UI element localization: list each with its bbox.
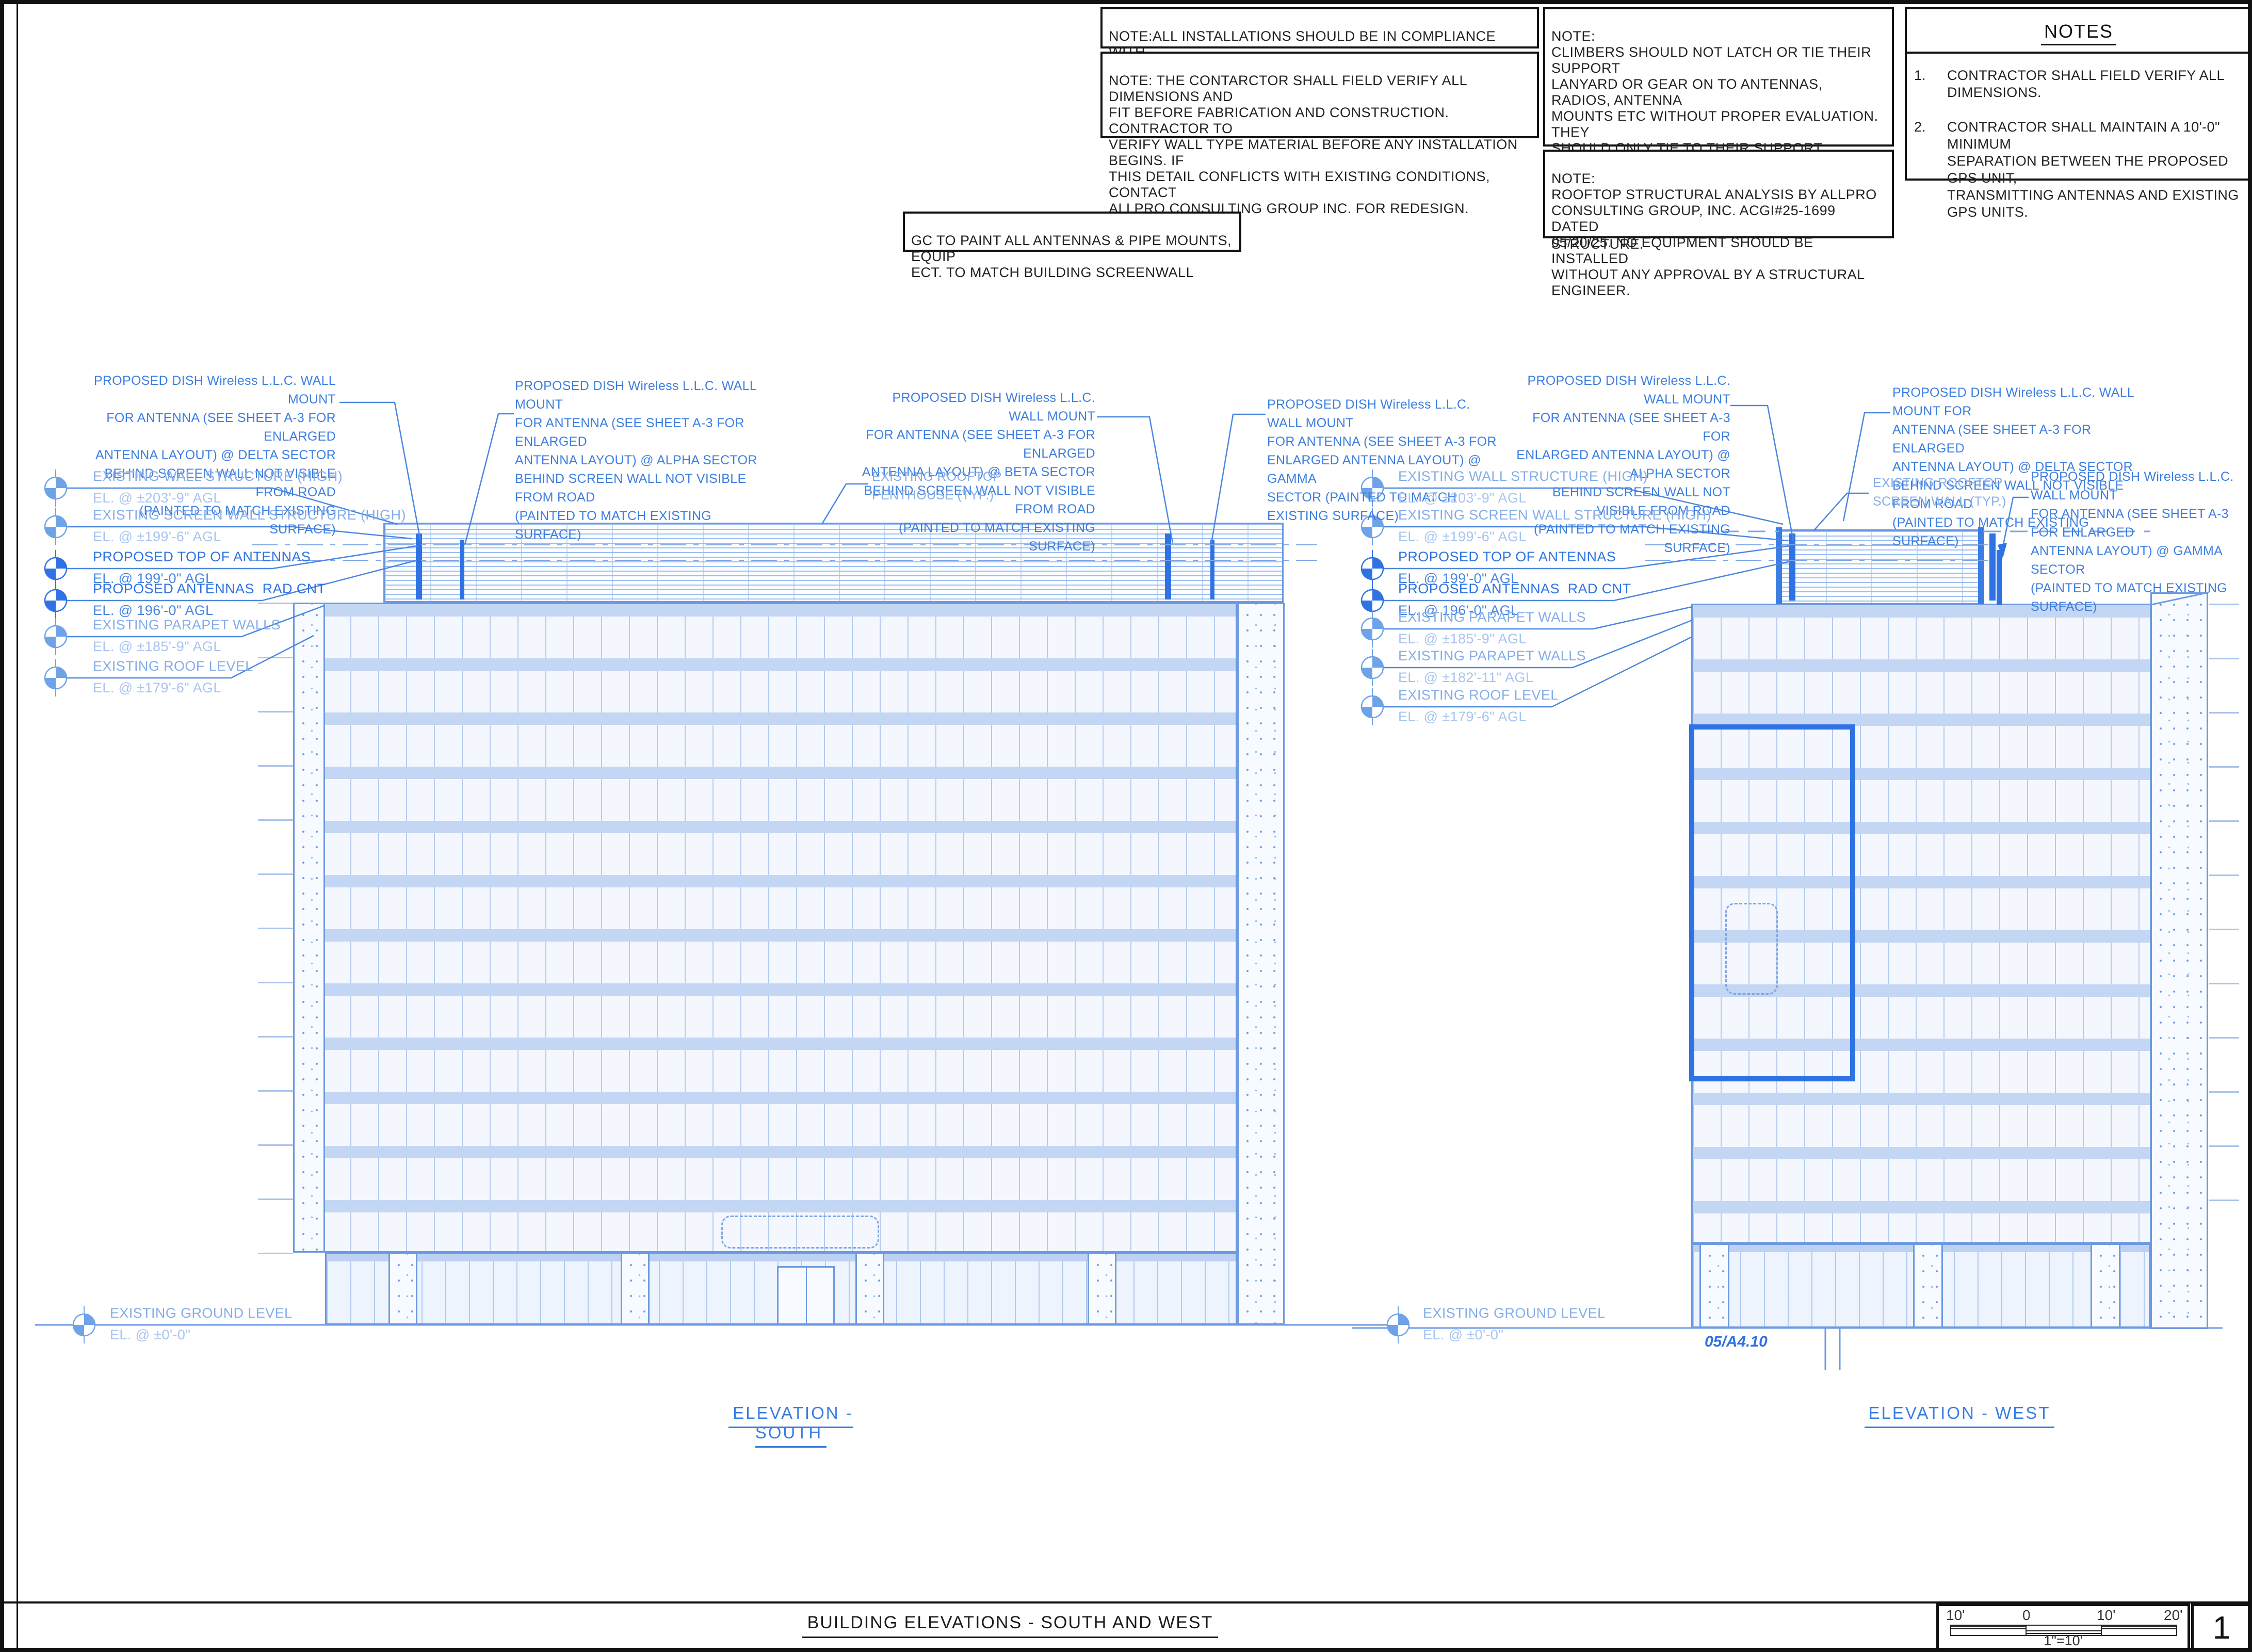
south-entrance-door [777, 1266, 835, 1325]
below-grade-lines [1825, 1328, 1840, 1370]
note-field-verify-text: NOTE: THE CONTARCTOR SHALL FIELD VERIFY … [1109, 73, 1518, 216]
scale-bar: 10' 0 10' 20' 1"=10' [1936, 1604, 2190, 1652]
west-screenwall-left-post [1776, 527, 1782, 606]
scale-ratio: 1"=10' [1939, 1633, 2188, 1649]
note-climbers-box: NOTE: CLIMBERS SHOULD NOT LATCH OR TIE T… [1543, 7, 1894, 147]
note-paint-box: GC TO PAINT ALL ANTENNAS & PIPE MOUNTS, … [903, 212, 1241, 252]
note-compliance-box: NOTE:ALL INSTALLATIONS SHOULD BE IN COMP… [1100, 7, 1539, 48]
south-facade-window-grid [293, 603, 1237, 1253]
south-datum-wall-structure: EXISTING WALL STRUCTURE (HIGH)EL. @ ±203… [93, 467, 343, 507]
notes-panel-item-2: 2. CONTRACTOR SHALL MAINTAIN A 10'-0" MI… [1914, 119, 2241, 221]
south-ground-pier [855, 1253, 884, 1325]
scale-label-left: 10' [1946, 1607, 1965, 1624]
notes-panel: NOTES 1. CONTRACTOR SHALL FIELD VERIFY A… [1905, 7, 2252, 181]
note-structural-box: NOTE: ROOFTOP STRUCTURAL ANALYSIS BY ALL… [1543, 150, 1894, 238]
west-right-concrete-column [2150, 592, 2208, 1329]
west-datum-parapet-walls-upper: EXISTING PARAPET WALLSEL. @ ±185'-9" AGL [1398, 608, 1586, 647]
note-field-verify-box: NOTE: THE CONTARCTOR SHALL FIELD VERIFY … [1100, 52, 1539, 138]
notes-panel-title: NOTES [1907, 9, 2250, 54]
drawing-sheet: NOTE:ALL INSTALLATIONS SHOULD BE IN COMP… [0, 0, 2252, 1652]
west-dashed-equipment-outline [1725, 903, 1778, 995]
south-ground-pier [388, 1253, 417, 1325]
note-structural-text: NOTE: ROOFTOP STRUCTURAL ANALYSIS BY ALL… [1551, 171, 1877, 298]
west-proposed-mount-highlight [1689, 724, 1855, 1081]
west-elevation-title: ELEVATION - WEST [1861, 1403, 2057, 1423]
west-floor-level-ticks [2209, 604, 2239, 1243]
south-datum-parapet-walls: EXISTING PARAPET WALLSEL. @ ±185'-9" AGL [93, 616, 281, 655]
west-ground-pier [1699, 1243, 1729, 1328]
south-ground-pier [621, 1253, 650, 1325]
titleblock-separator [4, 1601, 2248, 1604]
west-ground-pier [2091, 1243, 2120, 1328]
scale-label-mid: 10' [2097, 1607, 2116, 1624]
west-ground-pier [1913, 1243, 1943, 1328]
page-number: 1 [2191, 1604, 2252, 1652]
south-datum-screen-wall: EXISTING SCREEN WALL STRUCTURE (HIGH)EL.… [93, 506, 406, 545]
west-datum-roof-level: EXISTING ROOF LEVELEL. @ ±179'-6" AGL [1398, 686, 1559, 725]
south-elevation-title: ELEVATION - SOUTH [690, 1403, 892, 1443]
south-canopy-dashed-outline [721, 1216, 879, 1249]
west-datum-wall-structure: EXISTING WALL STRUCTURE (HIGH)EL. @ ±203… [1398, 467, 1648, 507]
sheet-left-margin-line [17, 4, 18, 1648]
scale-label-zero: 0 [2022, 1607, 2031, 1624]
note-paint-text: GC TO PAINT ALL ANTENNAS & PIPE MOUNTS, … [911, 233, 1232, 280]
south-datum-rad-center: PROPOSED ANTENNAS RAD CNTEL. @ 196'-0" A… [93, 580, 326, 619]
west-screenwall-label: EXISTING ROOFTOP SCREEN WALL (TYP.) [1873, 474, 2012, 511]
south-datum-ground-level: EXISTING GROUND LEVELEL. @ ±0'-0" [110, 1304, 292, 1343]
sheet-title: BUILDING ELEVATIONS - SOUTH AND WEST [768, 1613, 1253, 1633]
west-callout-gamma-sector: PROPOSED DISH Wireless L.L.C. WALL MOUNT… [2031, 467, 2252, 616]
south-datum-roof-level: EXISTING ROOF LEVELEL. @ ±179'-6" AGL [93, 657, 253, 697]
west-datum-parapet-walls-lower: EXISTING PARAPET WALLSEL. @ ±182'-11" AG… [1398, 647, 1586, 686]
south-callout-alpha-sector: PROPOSED DISH Wireless L.L.C. WALL MOUNT… [515, 377, 757, 544]
south-rooftop-penthouse-label: EXISTING ROOFTOP PENTHOUSE (TYP.) [872, 467, 1027, 505]
south-floor-level-ticks [258, 603, 293, 1254]
south-ground-pier [1088, 1253, 1116, 1325]
west-datum-screen-wall: EXISTING SCREEN WALL STRUCTURE (HIGH)EL.… [1398, 506, 1711, 545]
west-datum-ground-level: EXISTING GROUND LEVELEL. @ ±0'-0" [1423, 1304, 1605, 1343]
south-left-concrete-column [293, 603, 325, 1253]
notes-panel-item-1: 1. CONTRACTOR SHALL FIELD VERIFY ALL DIM… [1914, 67, 2241, 101]
scale-label-right: 20' [2164, 1607, 2183, 1624]
south-datum-symbols [45, 469, 95, 1343]
west-detail-reference: 05/A4.10 [1705, 1333, 1768, 1351]
south-right-concrete-column [1237, 603, 1285, 1325]
